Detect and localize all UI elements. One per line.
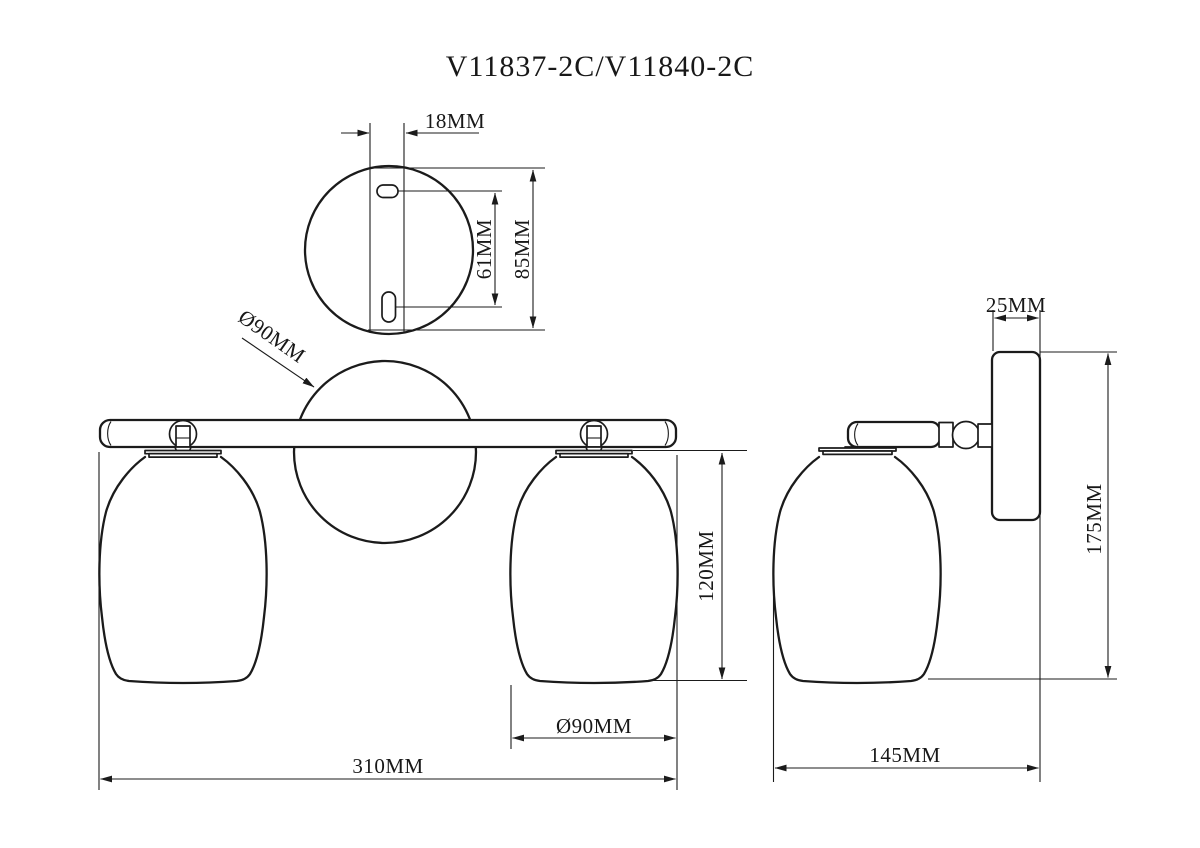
drawing-sheet: V11837-2C/V11840-2C 18MM 61MM 85MM [0, 0, 1200, 848]
arm-collar [939, 423, 953, 448]
dim-label-shade-90mm: Ø90MM [556, 714, 632, 738]
dim-label-85mm: 85MM [510, 219, 534, 279]
dim-label-145mm: 145MM [869, 743, 940, 767]
dim-plate-diameter: 85MM [510, 170, 534, 328]
drawing-title: V11837-2C/V11840-2C [446, 50, 754, 83]
dim-shade-diameter: Ø90MM [511, 685, 676, 749]
right-glass-shade [510, 457, 677, 683]
front-view: Ø90MM 120MM Ø90MM 310MM [99, 305, 747, 790]
shade-cap [560, 454, 628, 457]
dim-shade-height: 120MM [633, 451, 747, 681]
mount-block [587, 426, 601, 447]
dim-label-25mm: 25MM [986, 293, 1046, 317]
canopy-circle [294, 361, 476, 543]
dim-label-175mm: 175MM [1082, 483, 1106, 554]
dim-slot-offset: 18MM [341, 109, 485, 133]
dim-slot-spacing: 61MM [472, 193, 496, 305]
top-slot [377, 185, 398, 198]
bottom-slot [382, 292, 396, 322]
dim-canopy-diameter: Ø90MM [234, 305, 314, 387]
dim-label-120mm: 120MM [694, 530, 718, 601]
technical-drawing: V11837-2C/V11840-2C 18MM 61MM 85MM [0, 0, 1200, 848]
dim-backplate-depth: 25MM [986, 293, 1046, 351]
shade-cap [823, 451, 892, 454]
mounting-plate-view: 18MM 61MM 85MM [305, 109, 545, 334]
wall-collar [978, 424, 992, 447]
swivel-ball [953, 422, 980, 449]
dim-label-61mm: 61MM [472, 219, 496, 279]
mount-block [176, 426, 190, 447]
dim-label-18mm: 18MM [425, 109, 485, 133]
dim-label-310mm: 310MM [352, 754, 423, 778]
side-view: 25MM 175MM 145MM [773, 293, 1117, 782]
dim-projection: 145MM [774, 597, 1039, 782]
shade-cap [149, 454, 217, 457]
side-arm [848, 422, 940, 447]
wall-plate [992, 352, 1040, 520]
dim-overall-width: 310MM [99, 452, 677, 790]
left-glass-shade [99, 457, 266, 683]
side-glass-shade [773, 457, 940, 683]
